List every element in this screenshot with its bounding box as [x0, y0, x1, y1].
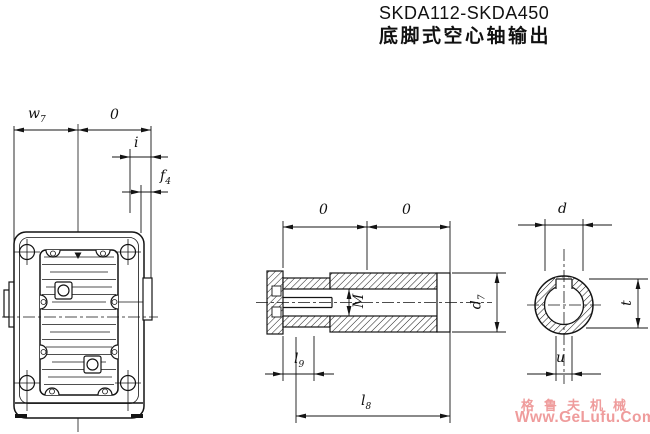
- dim-label-f4: f4: [160, 169, 171, 187]
- dim-label-o-left: 0: [319, 203, 328, 217]
- dim-label-m: M: [352, 294, 366, 308]
- dim-label-w7: w7: [28, 107, 46, 125]
- dim-label-u: u: [556, 351, 565, 365]
- foot-pad-right: [131, 414, 143, 418]
- dim-label-t: t: [620, 300, 634, 306]
- foot-pad-left: [15, 414, 27, 418]
- dim-label-o-right: 0: [402, 203, 411, 217]
- dim-label-o-front: 0: [110, 108, 119, 122]
- hollow-shaft-section-view: [256, 221, 506, 423]
- model-range: SKDA112-SKDA450: [379, 2, 551, 25]
- front-housing-view: [2, 124, 168, 432]
- side-boss-right: [143, 278, 152, 320]
- oil-plug-boss-upper: [55, 282, 72, 299]
- dim-label-d7: d7: [469, 295, 487, 310]
- dim-label-l8: l8: [361, 394, 371, 412]
- drawing-page: .o{fill:none;stroke:#141414;stroke-width…: [0, 0, 650, 434]
- mounting-subtitle: 底脚式空心轴输出: [379, 25, 551, 49]
- dim-label-i: i: [134, 136, 138, 150]
- dim-label-l9: l9: [294, 352, 304, 370]
- watermark-site: Www.GeLufu.Com: [515, 409, 650, 427]
- oil-plug-boss-lower: [84, 356, 101, 373]
- dim-label-d: d: [558, 202, 567, 216]
- drawing-title: SKDA112-SKDA450 底脚式空心轴输出: [379, 2, 551, 49]
